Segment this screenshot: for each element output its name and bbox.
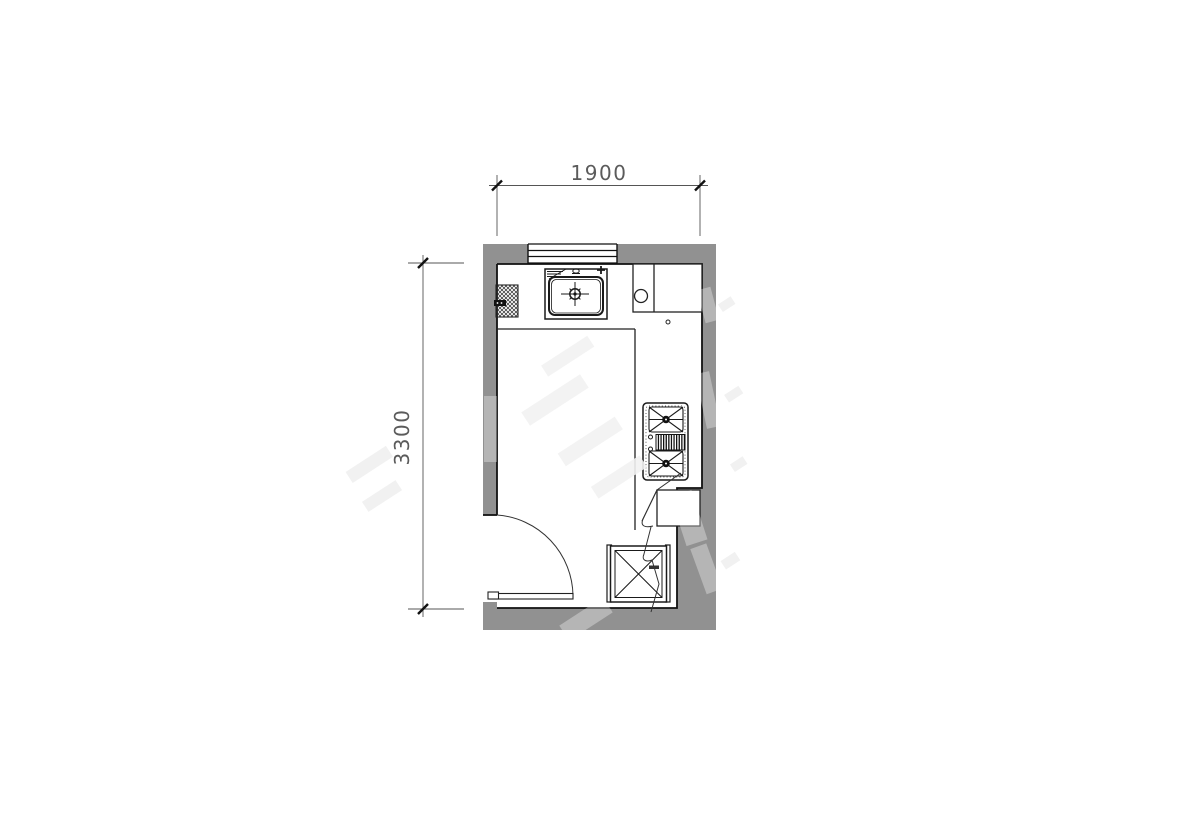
corner-cabinet <box>633 264 702 312</box>
door-leaf <box>490 594 573 600</box>
dimension-top: 1900 <box>489 161 708 236</box>
wall-left <box>483 244 497 515</box>
floor-plan-canvas: 1900 3300 <box>0 0 1198 831</box>
wall-right-upper <box>702 244 716 490</box>
dimension-left: 3300 <box>390 255 464 617</box>
dimension-left-label: 3300 <box>390 409 414 466</box>
sink <box>545 266 607 319</box>
pipe-duct-dot <box>497 302 499 304</box>
corner-cabinet-body <box>633 264 702 312</box>
leader-arrow-dash <box>649 566 659 570</box>
pipe-duct-dot <box>501 302 503 304</box>
pipe-duct-valve <box>494 300 506 306</box>
pipe-outlet-circle <box>666 320 670 324</box>
door <box>488 515 573 599</box>
door-leaf-hinge-cap <box>488 592 499 599</box>
cooktop <box>643 403 688 480</box>
door-swing-arc <box>497 515 573 596</box>
window-opening <box>528 244 617 264</box>
appliance-box <box>607 545 670 602</box>
dimension-top-label: 1900 <box>571 161 628 185</box>
pipe-duct <box>494 285 518 317</box>
floor-plan-drawing: 1900 3300 <box>0 0 1198 831</box>
dimension-left-extension-lines <box>408 263 464 609</box>
cooktop-grill <box>656 435 685 451</box>
window <box>528 244 617 264</box>
